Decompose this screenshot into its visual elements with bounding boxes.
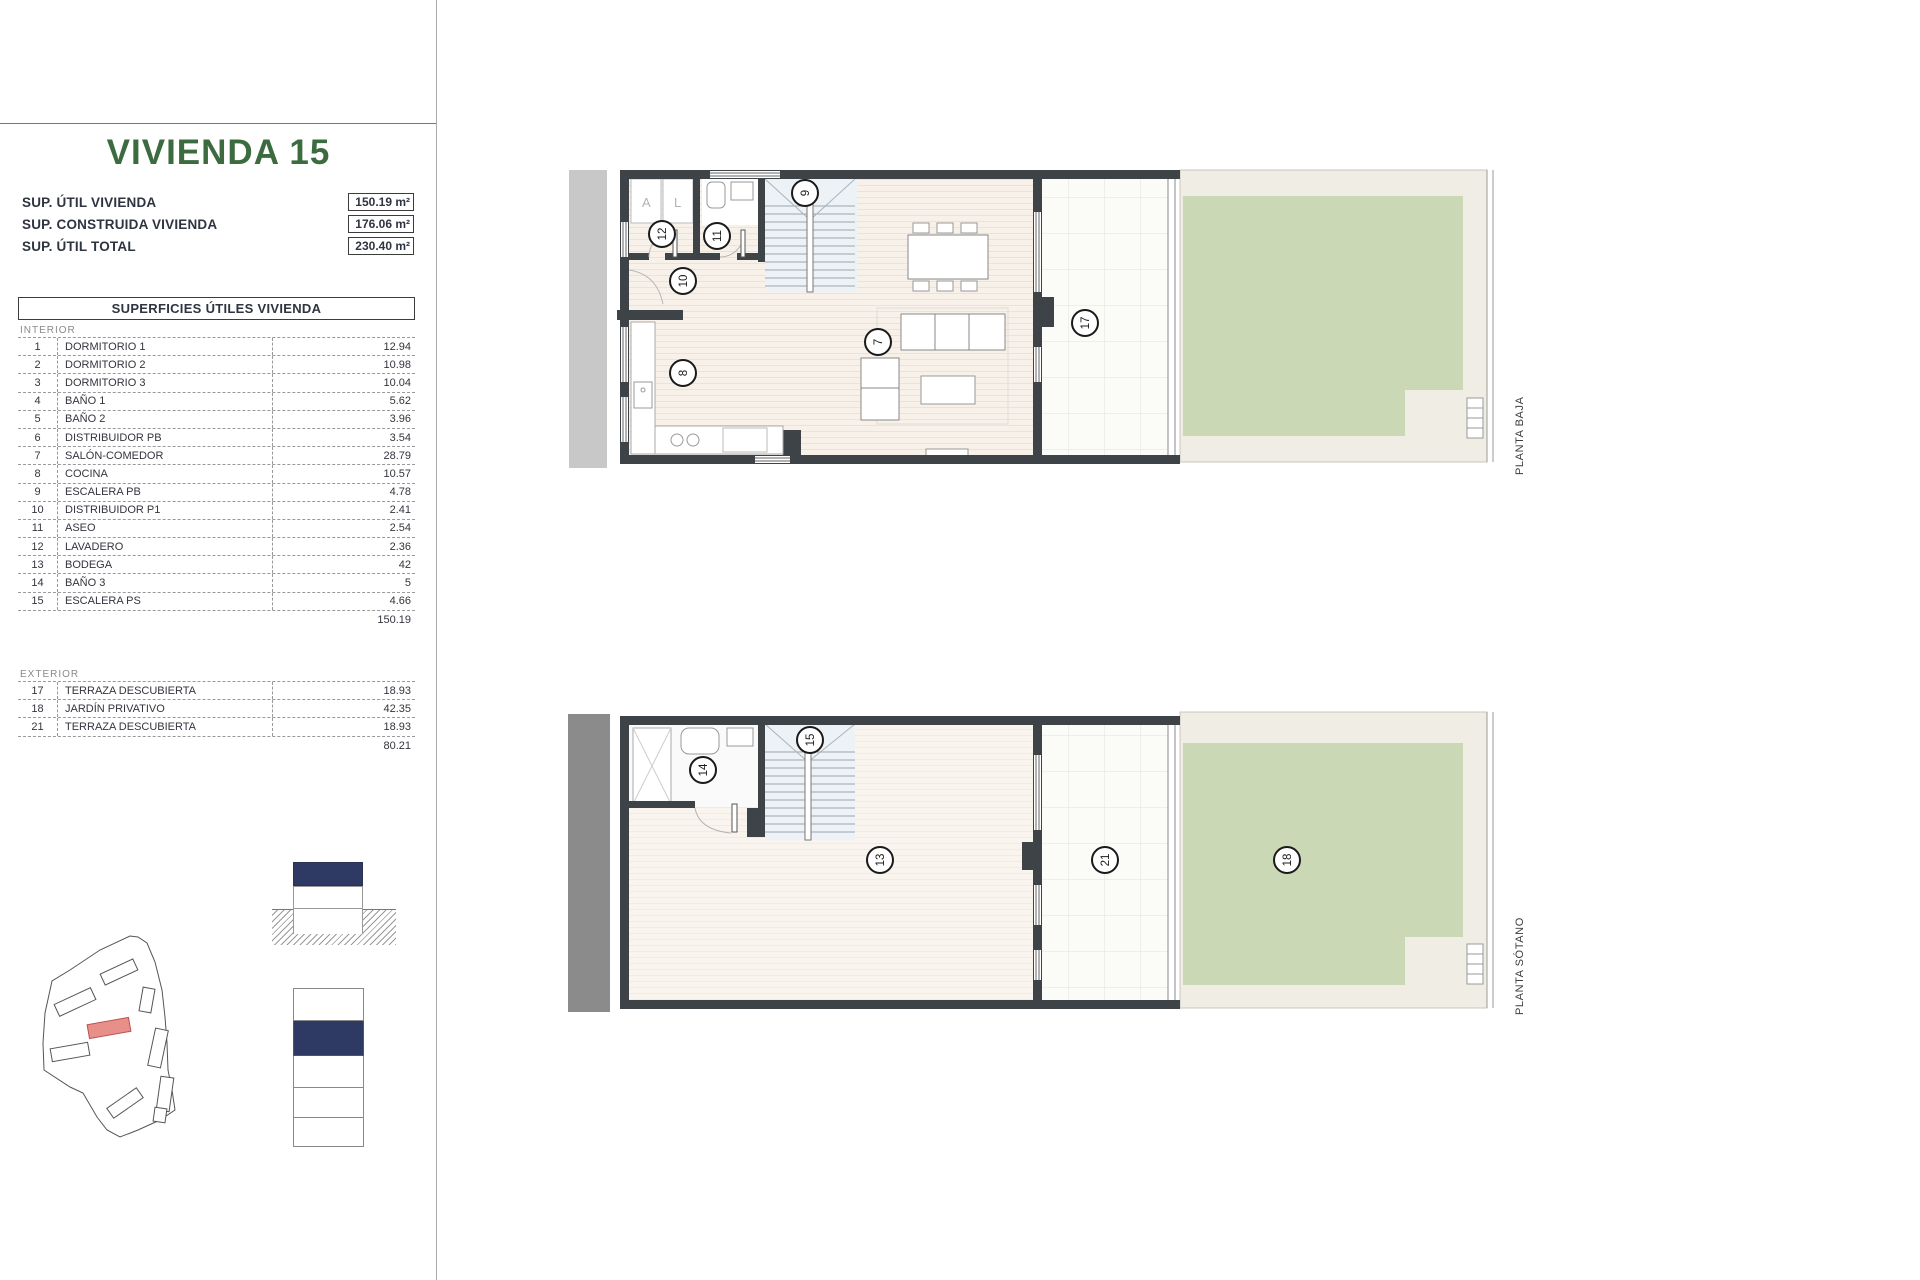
row-number: 4 (18, 393, 58, 410)
room-circle: 12 (649, 221, 675, 247)
row-number: 17 (18, 682, 58, 699)
table-row: 21 TERRAZA DESCUBIERTA 18.93 (18, 718, 415, 736)
row-name: ESCALERA PB (58, 484, 273, 501)
row-name: DORMITORIO 1 (58, 338, 273, 355)
table-row: 2 DORMITORIO 2 10.98 (18, 356, 415, 374)
row-name: DORMITORIO 3 (58, 374, 273, 391)
dining-set (908, 223, 988, 291)
level-band (293, 1118, 364, 1147)
areas-table-interior: SUPERFICIES ÚTILES VIVIENDA INTERIOR 1 D… (18, 297, 415, 626)
table-row: 12 LAVADERO 2.36 (18, 538, 415, 556)
table-row: 7 SALÓN-COMEDOR 28.79 (18, 447, 415, 465)
level-band (293, 1056, 364, 1088)
door-leaf (732, 804, 737, 832)
table-row: 6 DISTRIBUIDOR PB 3.54 (18, 429, 415, 447)
row-name: JARDÍN PRIVATIVO (58, 700, 273, 717)
row-value: 10.04 (273, 374, 415, 391)
svg-text:14: 14 (698, 763, 710, 776)
svg-text:11: 11 (712, 230, 724, 242)
table-row: 9 ESCALERA PB 4.78 (18, 484, 415, 502)
summary-row: SUP. CONSTRUIDA VIVIENDA 176.06 m² (22, 213, 414, 235)
row-number: 3 (18, 374, 58, 391)
room-circle: 15 (797, 727, 823, 753)
summary-label: SUP. ÚTIL TOTAL (22, 239, 348, 254)
site-building (153, 1107, 167, 1123)
door-leaf (741, 230, 745, 257)
site-key-plan (28, 930, 188, 1145)
svg-text:13: 13 (875, 854, 887, 867)
svg-text:12: 12 (657, 228, 669, 241)
planta-baja-label: PLANTA BAJA (1514, 395, 1526, 475)
row-number: 8 (18, 465, 58, 482)
panel-divider (436, 0, 437, 1280)
level-stack-diagram (293, 988, 364, 1147)
interior-total: 150.19 (18, 611, 415, 626)
svg-text:18: 18 (1282, 854, 1294, 867)
table-row: 5 BAÑO 2 3.96 (18, 411, 415, 429)
row-number: 7 (18, 447, 58, 464)
row-value: 18.93 (273, 682, 415, 699)
svg-text:10: 10 (678, 275, 690, 288)
garden-notch (1405, 390, 1463, 436)
row-number: 15 (18, 593, 58, 610)
level-band (293, 1088, 364, 1118)
closet-a-label: A (642, 195, 651, 210)
row-number: 10 (18, 502, 58, 519)
building-section-diagram (272, 860, 396, 950)
planta-baja-plan: A L (565, 162, 1515, 472)
row-name: BAÑO 2 (58, 411, 273, 428)
planta-sotano-label: PLANTA SÓTANO (1514, 918, 1526, 1015)
summary-value: 150.19 m² (348, 193, 414, 211)
summary-label: SUP. CONSTRUIDA VIVIENDA (22, 217, 348, 232)
room-circle: 11 (704, 223, 730, 249)
row-value: 10.98 (273, 356, 415, 373)
row-value: 5 (273, 574, 415, 591)
room-circle: 9 (792, 180, 818, 206)
terrace-grid (1040, 174, 1168, 462)
row-name: DISTRIBUIDOR P1 (58, 502, 273, 519)
exterior-total: 80.21 (18, 737, 415, 752)
row-name: ESCALERA PS (58, 593, 273, 610)
svg-text:17: 17 (1080, 317, 1092, 330)
room-circle: 13 (867, 847, 893, 873)
adjacent-unit-band (569, 170, 607, 468)
planta-sotano-plan: 14 15 13 21 18 (565, 700, 1515, 1030)
table-row: 4 BAÑO 1 5.62 (18, 393, 415, 411)
table-row: 8 COCINA 10.57 (18, 465, 415, 483)
section-highlight-level (293, 862, 363, 886)
table-row: 17 TERRAZA DESCUBIERTA 18.93 (18, 682, 415, 700)
row-name: DISTRIBUIDOR PB (58, 429, 273, 446)
row-value: 2.41 (273, 502, 415, 519)
interior-rows: 1 DORMITORIO 1 12.94 2 DORMITORIO 2 10.9… (18, 337, 415, 611)
row-value: 5.62 (273, 393, 415, 410)
header-rule (0, 123, 437, 124)
summary-label: SUP. ÚTIL VIVIENDA (22, 195, 348, 210)
row-name: BAÑO 1 (58, 393, 273, 410)
row-name: TERRAZA DESCUBIERTA (58, 718, 273, 735)
row-number: 12 (18, 538, 58, 555)
table-row: 10 DISTRIBUIDOR P1 2.41 (18, 502, 415, 520)
areas-table-exterior: EXTERIOR 17 TERRAZA DESCUBIERTA 18.93 18… (18, 664, 415, 752)
row-number: 21 (18, 718, 58, 735)
svg-text:21: 21 (1100, 854, 1112, 867)
areas-table-header: SUPERFICIES ÚTILES VIVIENDA (18, 297, 415, 320)
closet-l-label: L (674, 195, 681, 210)
interior-section-label: INTERIOR (20, 325, 415, 336)
summary-row: SUP. ÚTIL TOTAL 230.40 m² (22, 235, 414, 257)
svg-text:15: 15 (805, 734, 817, 747)
table-row: 15 ESCALERA PS 4.66 (18, 593, 415, 611)
table-row: 3 DORMITORIO 3 10.04 (18, 374, 415, 392)
summary-value: 176.06 m² (348, 215, 414, 233)
room-circle: 21 (1092, 847, 1118, 873)
level-band-highlight (293, 1021, 364, 1056)
terrace-fence (1168, 718, 1175, 1002)
row-number: 13 (18, 556, 58, 573)
row-name: BODEGA (58, 556, 273, 573)
row-value: 4.78 (273, 484, 415, 501)
room-circle: 18 (1274, 847, 1300, 873)
table-row: 14 BAÑO 3 5 (18, 574, 415, 592)
row-number: 2 (18, 356, 58, 373)
section-basement-level (293, 909, 363, 934)
terrace-fence (1168, 176, 1175, 460)
svg-text:7: 7 (873, 339, 885, 345)
svg-text:8: 8 (678, 370, 690, 376)
row-number: 6 (18, 429, 58, 446)
row-number: 1 (18, 338, 58, 355)
row-value: 18.93 (273, 718, 415, 735)
row-name: BAÑO 3 (58, 574, 273, 591)
row-value: 42 (273, 556, 415, 573)
garden-notch (1405, 937, 1463, 985)
exterior-section-label: EXTERIOR (20, 669, 415, 680)
room-circle: 10 (670, 268, 696, 294)
bathroom-fixtures (702, 179, 758, 225)
room-circle: 7 (865, 329, 891, 355)
summary-block: SUP. ÚTIL VIVIENDA 150.19 m² SUP. CONSTR… (22, 191, 414, 257)
row-number: 11 (18, 520, 58, 537)
row-name: ASEO (58, 520, 273, 537)
table-row: 11 ASEO 2.54 (18, 520, 415, 538)
level-band (293, 988, 364, 1021)
row-name: DORMITORIO 2 (58, 356, 273, 373)
table-row: 13 BODEGA 42 (18, 556, 415, 574)
row-value: 10.57 (273, 465, 415, 482)
table-row: 1 DORMITORIO 1 12.94 (18, 338, 415, 356)
section-level (293, 886, 363, 909)
row-value: 12.94 (273, 338, 415, 355)
room-circle: 17 (1072, 310, 1098, 336)
row-value: 42.35 (273, 700, 415, 717)
garden-steps (1467, 944, 1483, 984)
row-name: TERRAZA DESCUBIERTA (58, 682, 273, 699)
room-circle: 8 (670, 360, 696, 386)
row-value: 4.66 (273, 593, 415, 610)
row-name: LAVADERO (58, 538, 273, 555)
garden-steps (1467, 398, 1483, 438)
row-name: SALÓN-COMEDOR (58, 447, 273, 464)
row-value: 2.36 (273, 538, 415, 555)
svg-text:9: 9 (800, 190, 812, 196)
row-value: 28.79 (273, 447, 415, 464)
table-row: 18 JARDÍN PRIVATIVO 42.35 (18, 700, 415, 718)
summary-value: 230.40 m² (348, 237, 414, 255)
row-value: 3.54 (273, 429, 415, 446)
row-value: 2.54 (273, 520, 415, 537)
adjacent-unit-band (568, 714, 610, 1012)
exterior-rows: 17 TERRAZA DESCUBIERTA 18.93 18 JARDÍN P… (18, 681, 415, 737)
row-number: 18 (18, 700, 58, 717)
row-number: 5 (18, 411, 58, 428)
page-title: VIVIENDA 15 (0, 133, 437, 173)
row-number: 14 (18, 574, 58, 591)
row-number: 9 (18, 484, 58, 501)
row-name: COCINA (58, 465, 273, 482)
summary-row: SUP. ÚTIL VIVIENDA 150.19 m² (22, 191, 414, 213)
room-circle: 14 (690, 757, 716, 783)
row-value: 3.96 (273, 411, 415, 428)
